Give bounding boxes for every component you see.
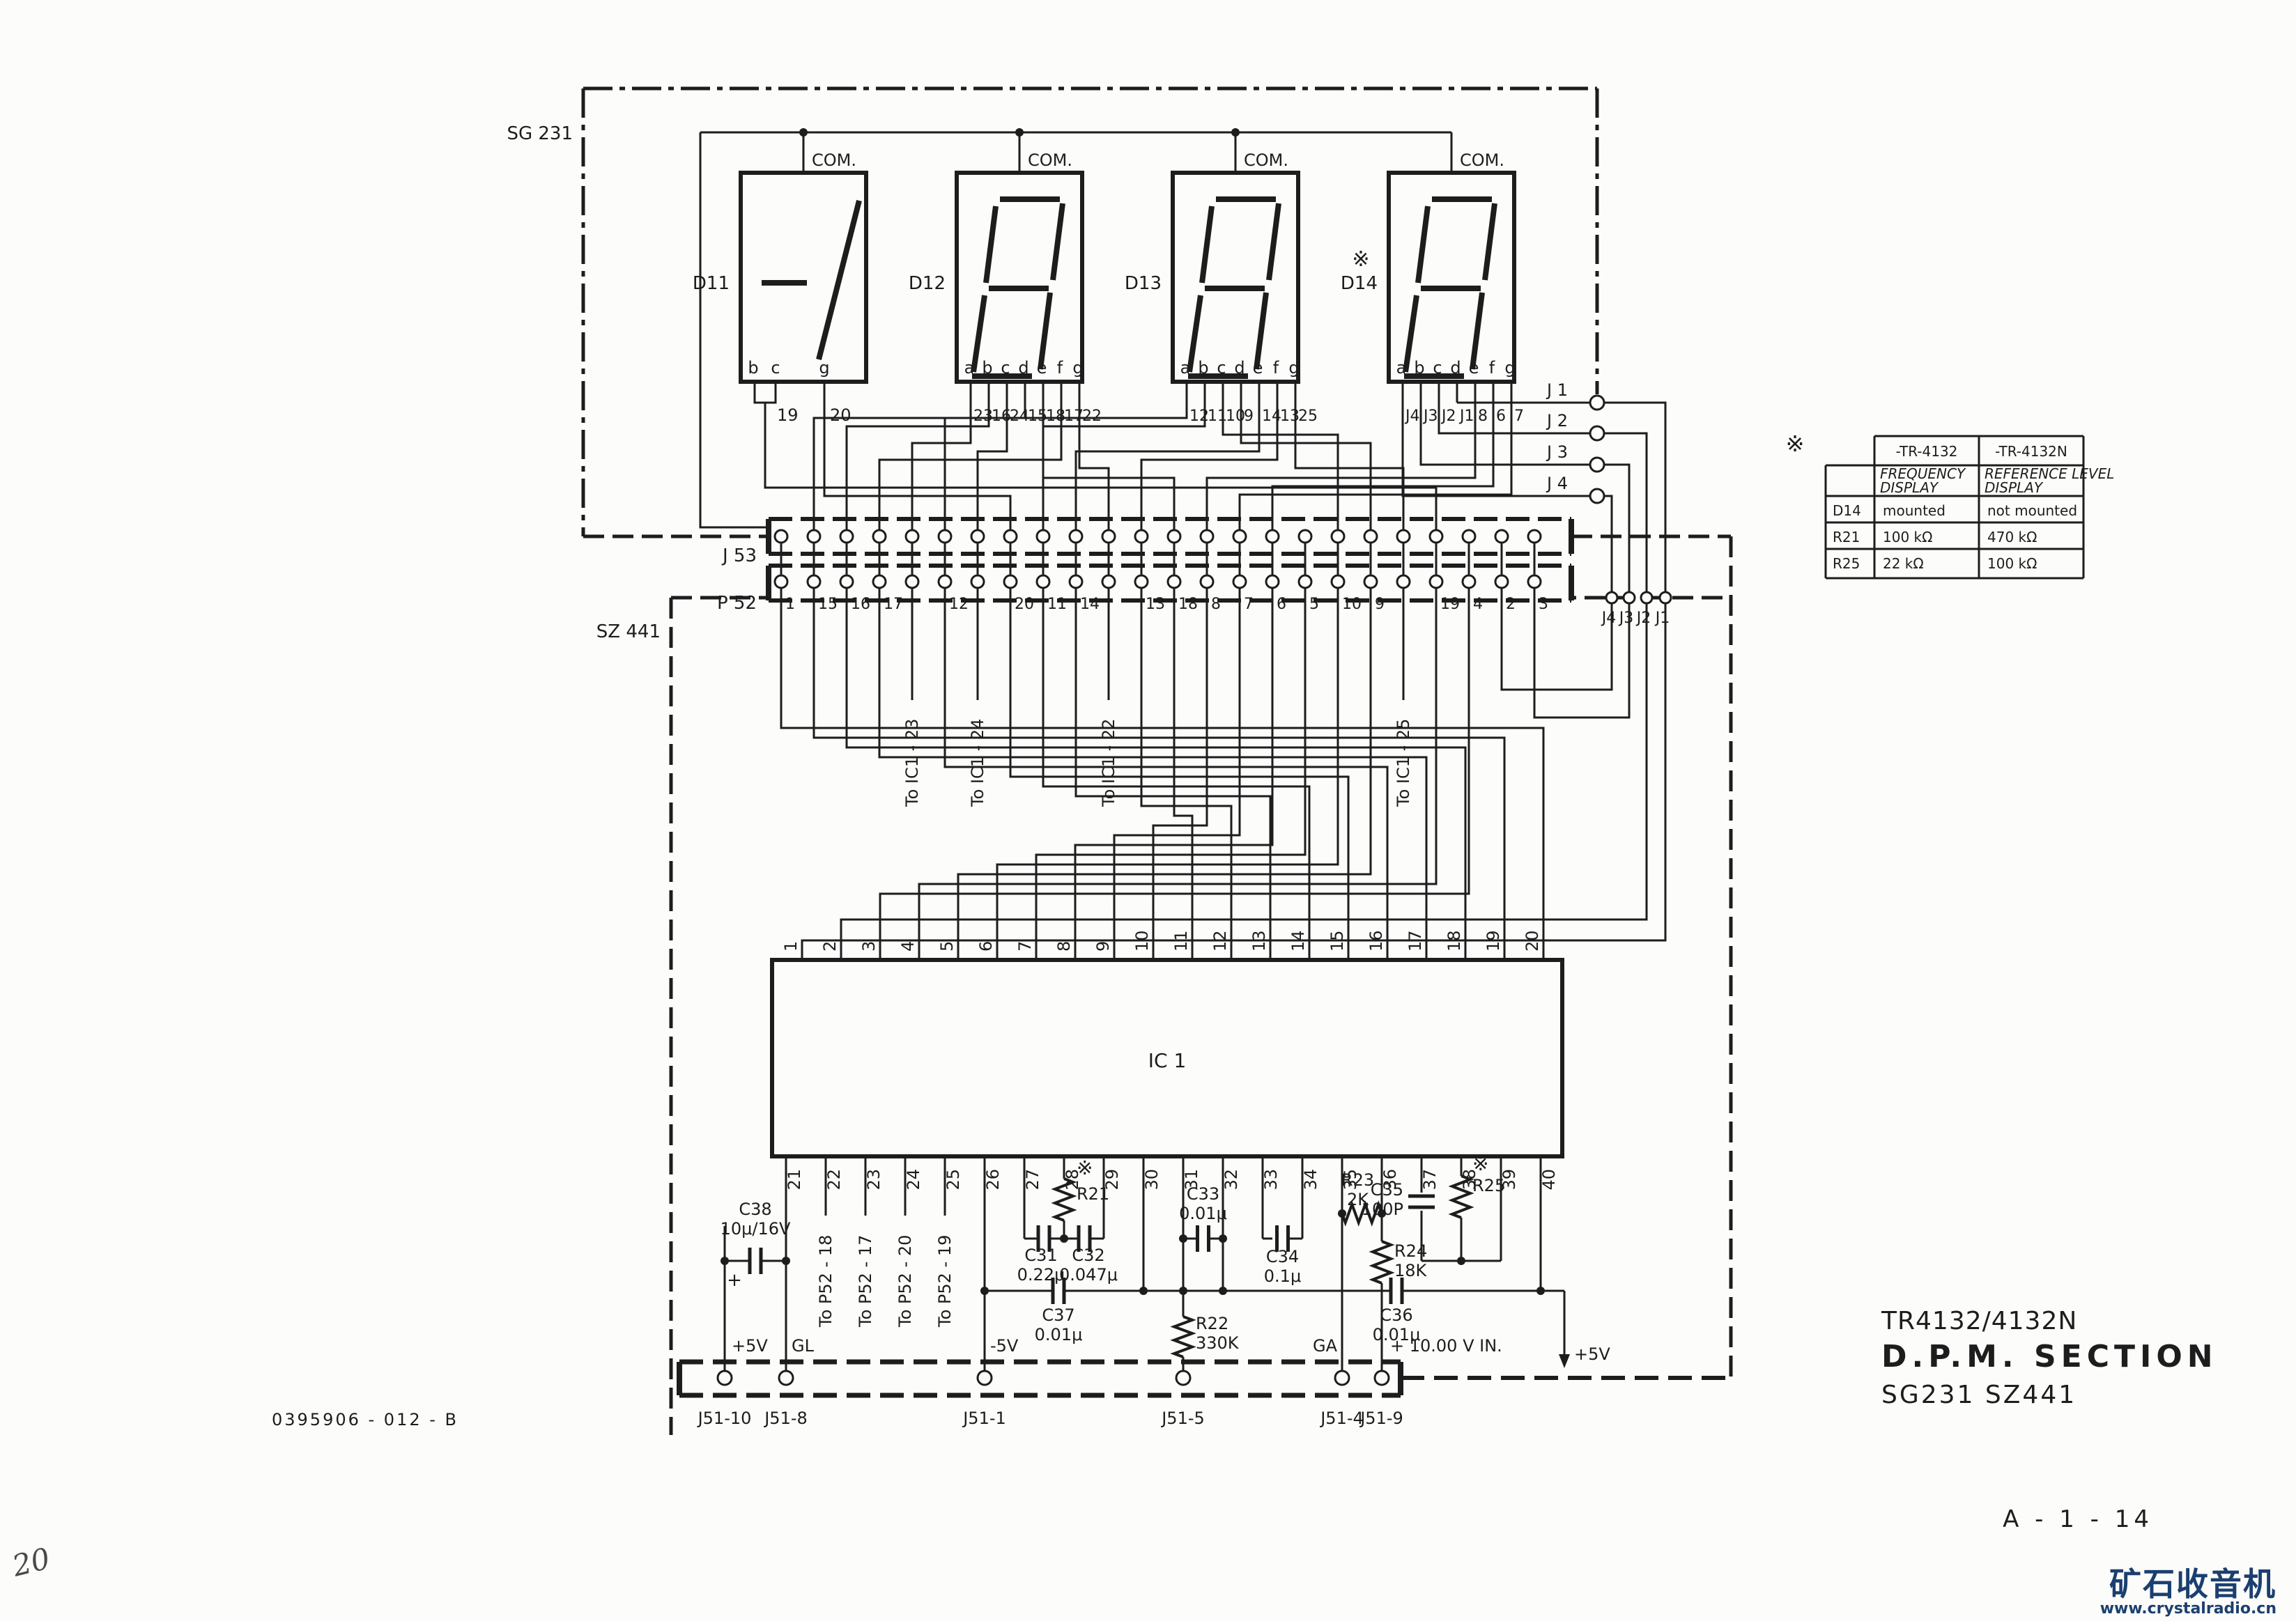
- jumper-label: J 4: [1546, 474, 1568, 493]
- segment-letter: f: [1057, 358, 1063, 378]
- connector-pin-circle: [1332, 575, 1344, 588]
- connector-pin-circle: [775, 530, 787, 543]
- connector-pin-circle: [1528, 530, 1541, 543]
- connector-pin-circle: [1495, 530, 1508, 543]
- p52-pin-number: 3: [1539, 596, 1548, 613]
- com-label: COM.: [812, 150, 856, 170]
- junction-dot: [1015, 128, 1024, 137]
- connector-pin-circle: [1397, 575, 1410, 588]
- segment-letter: b: [982, 358, 992, 378]
- com-label: COM.: [1028, 150, 1072, 170]
- connector-pin-circle: [1590, 489, 1604, 503]
- connector-pin-circle: [1463, 530, 1475, 543]
- c33-ref: C33: [1187, 1184, 1219, 1204]
- display-ref: D14: [1341, 273, 1378, 294]
- cascade-wire: [1534, 588, 1629, 718]
- display-pin-number: 8: [1478, 408, 1488, 425]
- segment-letter: g: [1504, 358, 1515, 378]
- p52-right-pin-label: J3: [1618, 610, 1634, 627]
- display-pin-number: J3: [1422, 408, 1438, 425]
- connector-pin-circle: [1430, 530, 1442, 543]
- watermark-name: 矿石收音机: [2100, 1567, 2276, 1601]
- segment-letter: e: [1469, 358, 1479, 378]
- connector-pin-circle: [1364, 575, 1377, 588]
- r23-ref: R23: [1341, 1170, 1374, 1190]
- power-label-p5-right: +5V: [1574, 1344, 1610, 1364]
- connector-pin-circle: [971, 575, 984, 588]
- p52-pin-number: 2: [1506, 596, 1516, 613]
- display-pin-number: 13: [1280, 408, 1300, 425]
- connector-pin-circle: [1606, 592, 1617, 603]
- c35-value: 100P: [1362, 1200, 1403, 1219]
- c34-ref: C34: [1266, 1247, 1299, 1266]
- segment-f: [986, 206, 996, 283]
- connector-pin-circle: [873, 575, 886, 588]
- connector-pin-circle: [1375, 1371, 1389, 1385]
- net-stub-label: To IC1 - 22: [1099, 719, 1118, 807]
- display-pin-number: J4: [1404, 408, 1420, 425]
- ic-top-pin-number: 16: [1366, 930, 1386, 952]
- ic-top-pin-number: 18: [1444, 930, 1464, 952]
- junction-dot: [1219, 1287, 1227, 1295]
- connector-pin-circle: [873, 530, 886, 543]
- segment-letter: d: [1234, 358, 1245, 378]
- c38-value: 10μ/16V: [721, 1219, 791, 1239]
- ic-bottom-pin-number: 37: [1420, 1169, 1440, 1190]
- display-pin-number: J1: [1458, 408, 1474, 425]
- junction-dot: [799, 128, 808, 137]
- ic-bottom-pin-number: 34: [1301, 1169, 1320, 1190]
- jumper-wire: [1604, 433, 1647, 592]
- ic-top-pin-number: 8: [1054, 941, 1074, 952]
- p52-pin-number: 15: [818, 596, 838, 613]
- p52-pin-number: 18: [1178, 596, 1198, 613]
- junction-dot: [1536, 1287, 1545, 1295]
- connector-pin-circle: [1070, 575, 1082, 588]
- p52-pin-number: 4: [1473, 596, 1483, 613]
- p52-pin-number: 13: [1146, 596, 1165, 613]
- ic-top-pin-number: 3: [859, 941, 879, 952]
- segment-letter: e: [1253, 358, 1263, 378]
- j51-pin-label: J51-1: [962, 1409, 1006, 1428]
- segment-letter: c: [1217, 358, 1226, 378]
- cascade-wire: [1153, 588, 1207, 960]
- ic-bottom-pin-number: 30: [1142, 1169, 1162, 1190]
- cascade-wire: [997, 588, 1338, 960]
- cascade-wire: [802, 603, 1665, 960]
- connector-pin-circle: [1299, 530, 1311, 543]
- connector-pin-circle: [1590, 396, 1604, 410]
- connector-pin-circle: [1168, 575, 1180, 588]
- connector-pin-circle: [1201, 530, 1213, 543]
- variant-marker: ※: [1352, 247, 1369, 272]
- display-ref: D12: [909, 273, 946, 294]
- com-label: COM.: [1244, 150, 1288, 170]
- connector-pin-circle: [939, 530, 951, 543]
- c35-ref: C35: [1371, 1180, 1403, 1200]
- connector-pin-circle: [1176, 1371, 1190, 1385]
- connector-pin-circle: [1590, 458, 1604, 472]
- connector-pin-circle: [1004, 575, 1017, 588]
- cascade-wire: [847, 588, 1465, 960]
- display-pin-number: 24: [1010, 408, 1029, 425]
- schematic-page: SG 231COM.D11bcg1920COM.D12a23b16c24d15e…: [0, 0, 2296, 1621]
- table-cell: 470 kΩ: [1987, 529, 2037, 545]
- segment-letter: a: [1396, 358, 1407, 378]
- cascade-wire: [781, 588, 1543, 960]
- display-pin-number: J2: [1440, 408, 1456, 425]
- display-pin-number: 25: [1298, 408, 1318, 425]
- segment-f: [1418, 206, 1428, 283]
- connector-pin-circle: [775, 575, 787, 588]
- ic-top-pin-number: 15: [1327, 930, 1347, 952]
- display-fan-wire: [765, 411, 1436, 530]
- segment-letter: g: [1288, 358, 1299, 378]
- segment-letter: e: [1037, 358, 1047, 378]
- ic-bottom-pin-number: 22: [824, 1169, 844, 1190]
- display-pin-stub: [755, 382, 776, 403]
- table-row-ref: D14: [1833, 502, 1861, 519]
- junction-dot: [721, 1257, 729, 1265]
- segment-letter: a: [964, 358, 975, 378]
- ic-top-pin-number: 5: [937, 941, 957, 952]
- j51-pin-label: J51-5: [1160, 1409, 1205, 1428]
- ic-top-pin-number: 13: [1249, 930, 1269, 952]
- connector-pin-circle: [808, 530, 820, 543]
- j51-pin-label: J51-8: [763, 1409, 808, 1428]
- connector-pin-circle: [840, 530, 853, 543]
- display-pin-number: 11: [1208, 408, 1227, 425]
- r22-value: 330K: [1196, 1333, 1240, 1353]
- p52-pin-number: 17: [884, 596, 903, 613]
- segment-letter: b: [748, 358, 758, 378]
- r21-marker: ※: [1077, 1156, 1093, 1179]
- segment-letter: d: [1450, 358, 1461, 378]
- j51-pin-label: J51-10: [697, 1409, 752, 1428]
- ic-top-pin-number: 9: [1093, 941, 1113, 952]
- cascade-wire: [1502, 588, 1612, 690]
- segment-letter: d: [1018, 358, 1028, 378]
- display-fan-wire: [912, 403, 971, 530]
- table-cell: 22 kΩ: [1883, 555, 1924, 572]
- r25-ref: R25: [1472, 1176, 1505, 1195]
- title-boards: SG231 SZ441: [1881, 1381, 2077, 1409]
- r24-resistor: [1373, 1241, 1391, 1283]
- title-model: TR4132/4132N: [1881, 1307, 2077, 1335]
- ic-bottom-pin-number: 33: [1261, 1169, 1281, 1190]
- connector-pin-circle: [1037, 575, 1049, 588]
- table-cell: not mounted: [1987, 502, 2077, 519]
- p52-pin-number: 8: [1211, 596, 1221, 613]
- display-ref: D11: [693, 273, 730, 294]
- power-label-gl: GL: [792, 1336, 815, 1356]
- segment-letter: c: [1433, 358, 1442, 378]
- display-fan-wire: [847, 403, 989, 530]
- ic-bottom-pin-number: 27: [1023, 1169, 1042, 1190]
- p52-pin-number: 10: [1342, 596, 1362, 613]
- segment-b: [1269, 203, 1279, 280]
- power-label-vin: + 10.00 V IN.: [1390, 1336, 1502, 1356]
- p52-right-pin-label: J2: [1635, 610, 1651, 627]
- cascade-wire: [1141, 588, 1231, 960]
- plus5-arrow: [1559, 1354, 1570, 1368]
- connector-pin-circle: [1168, 530, 1180, 543]
- connector-pin-circle: [1430, 575, 1442, 588]
- c32-value: 0.047μ: [1059, 1265, 1118, 1285]
- r21-ref: R21: [1077, 1184, 1109, 1204]
- j53-lead-solid: [700, 132, 766, 527]
- table-row-ref: R21: [1833, 529, 1860, 545]
- ic-top-pin-number: 6: [976, 941, 996, 952]
- ic-net-stub-label: To P52 - 20: [895, 1235, 915, 1328]
- c38-ref: C38: [739, 1200, 771, 1219]
- table-col-header: -TR-4132: [1896, 443, 1958, 460]
- p52-pin-number: 1: [785, 596, 795, 613]
- p52-right-pin-label: J4: [1601, 610, 1617, 627]
- connector-pin-circle: [1266, 530, 1279, 543]
- j51-pin-label: J51-9: [1359, 1409, 1403, 1428]
- connector-pin-circle: [1528, 575, 1541, 588]
- c38-polarity: +: [727, 1270, 742, 1291]
- connector-pin-circle: [1660, 592, 1671, 603]
- display-pin-number: 19: [777, 405, 799, 425]
- table-row-ref: R25: [1833, 555, 1860, 572]
- p52-right-pin-label: J1: [1654, 610, 1670, 627]
- jumper-wire: [1604, 496, 1612, 592]
- p52-pin-number: 20: [1015, 596, 1034, 613]
- ic-top-pin-number: 2: [820, 941, 840, 952]
- p52-pin-number: 12: [949, 596, 969, 613]
- display-pin-number: 18: [1046, 408, 1065, 425]
- c31-value: 0.22μ: [1017, 1265, 1065, 1285]
- connector-pin-circle: [840, 575, 853, 588]
- connector-pin-circle: [1463, 575, 1475, 588]
- connector-pin-circle: [1299, 575, 1311, 588]
- segment-b: [1485, 203, 1495, 280]
- net-stub-label: To IC1 - 24: [968, 719, 987, 807]
- ic-top-pin-number: 11: [1171, 930, 1191, 952]
- ic-bottom-pin-number: 24: [904, 1169, 923, 1190]
- connector-pin-circle: [978, 1371, 992, 1385]
- connector-pin-circle: [1037, 530, 1049, 543]
- connector-pin-circle: [1335, 1371, 1349, 1385]
- watermark-url: www.crystalradio.cn: [2100, 1601, 2276, 1617]
- display-pin-number: 20: [830, 405, 852, 425]
- cascade-wire: [1114, 588, 1240, 960]
- power-label-ga: GA: [1313, 1336, 1338, 1356]
- connector-pin-circle: [1364, 530, 1377, 543]
- display-pin-number: 12: [1189, 408, 1209, 425]
- connector-pin-circle: [906, 575, 918, 588]
- connector-pin-circle: [1201, 575, 1213, 588]
- connector-pin-circle: [808, 575, 820, 588]
- connector-pin-circle: [1590, 426, 1604, 440]
- connector-pin-circle: [779, 1371, 793, 1385]
- connector-pin-circle: [1135, 575, 1148, 588]
- connector-pin-circle: [1004, 530, 1017, 543]
- junction-dot: [1139, 1287, 1148, 1295]
- ic-bottom-pin-number: 40: [1539, 1169, 1559, 1190]
- net-stub-label: To IC1 - 25: [1394, 719, 1413, 807]
- cascade-wire: [1010, 588, 1348, 960]
- display-pin-number: 22: [1082, 408, 1102, 425]
- display-pin-number: 23: [973, 408, 993, 425]
- connector-pin-circle: [1641, 592, 1652, 603]
- table-col-header: -TR-4132N: [1995, 443, 2067, 460]
- connector-pin-circle: [1135, 530, 1148, 543]
- junction-dot: [1060, 1234, 1068, 1243]
- p52-pin-number: 6: [1277, 596, 1286, 613]
- ic-top-pin-number: 10: [1132, 930, 1152, 952]
- p52-pin-number: 16: [851, 596, 870, 613]
- seven-seg-display: [741, 173, 866, 382]
- display-pin-number: 9: [1244, 408, 1254, 425]
- display-pin-number: 14: [1262, 408, 1281, 425]
- c37-ref: C37: [1042, 1305, 1074, 1325]
- segment-letter: f: [1273, 358, 1279, 378]
- page-number: A - 1 - 14: [2003, 1505, 2153, 1533]
- segment-b: [1053, 203, 1063, 280]
- p52-pin-number: 11: [1047, 596, 1067, 613]
- watermark: 矿石收音机 www.crystalradio.cn: [2100, 1567, 2276, 1617]
- p52-pin-number: 7: [1244, 596, 1254, 613]
- variant-table-marker: ※: [1786, 431, 1805, 457]
- p52-pin-number: 9: [1375, 596, 1385, 613]
- segment-letter: a: [1180, 358, 1191, 378]
- segment-f: [1202, 206, 1212, 283]
- ic-top-pin-number: 17: [1405, 930, 1425, 952]
- j51-pin-label: J51-4: [1319, 1409, 1364, 1428]
- connector-pin-circle: [718, 1371, 732, 1385]
- connector-pin-circle: [1397, 530, 1410, 543]
- jumper-label: J 3: [1546, 442, 1568, 462]
- connector-pin-circle: [939, 575, 951, 588]
- ic-top-pin-number: 12: [1210, 930, 1230, 952]
- ic-top-pin-number: 14: [1288, 930, 1308, 952]
- display-pin-number: 10: [1226, 408, 1245, 425]
- title-section: D.P.M. SECTION: [1881, 1339, 2218, 1374]
- junction-dot: [1457, 1257, 1465, 1265]
- table-sub-header: DISPLAY: [1985, 479, 2044, 496]
- connector-pin-circle: [1233, 575, 1246, 588]
- display-pin-number: 6: [1496, 408, 1506, 425]
- c36-ref: C36: [1380, 1305, 1412, 1325]
- com-label: COM.: [1460, 150, 1504, 170]
- doc-number: 0395906 - 012 - B: [272, 1410, 459, 1429]
- segment-letter: g: [819, 358, 829, 378]
- ic-top-pin-number: 4: [898, 941, 918, 952]
- ic-bottom-pin-number: 21: [785, 1169, 804, 1190]
- board-label-sz441: SZ 441: [596, 621, 661, 642]
- c33-value: 0.01μ: [1179, 1204, 1227, 1223]
- junction-dot: [1231, 128, 1240, 137]
- ic-bottom-pin-number: 32: [1222, 1169, 1241, 1190]
- junction-dot: [1338, 1209, 1346, 1218]
- ic-bottom-pin-number: 23: [864, 1169, 884, 1190]
- cascade-wire: [841, 603, 1647, 960]
- display-pin-number: 16: [992, 408, 1011, 425]
- connector-pin-circle: [1332, 530, 1344, 543]
- connector-pin-circle: [971, 530, 984, 543]
- segment-letter: b: [1198, 358, 1208, 378]
- table-cell: 100 kΩ: [1987, 555, 2037, 572]
- connector-pin-circle: [1233, 530, 1246, 543]
- r24-value: 18K: [1394, 1261, 1428, 1280]
- display-ref: D13: [1125, 273, 1162, 294]
- segment-letter: g: [1072, 358, 1083, 378]
- junction-dot: [980, 1287, 989, 1295]
- ic-bottom-pin-number: 25: [943, 1169, 963, 1190]
- display-pin-number: 17: [1064, 408, 1084, 425]
- table-cell: 100 kΩ: [1883, 529, 1932, 545]
- segment-bc: [819, 201, 859, 359]
- connector-pin-circle: [1495, 575, 1508, 588]
- connector-pin-circle: [1624, 592, 1635, 603]
- c37-value: 0.01μ: [1035, 1325, 1083, 1344]
- connector-pin-circle: [1102, 575, 1115, 588]
- r22-resistor: [1174, 1317, 1192, 1357]
- net-stub-label: To IC1 - 23: [902, 719, 922, 807]
- segment-letter: c: [1001, 358, 1010, 378]
- jumper-wire: [1604, 465, 1629, 592]
- segment-letter: f: [1489, 358, 1495, 378]
- c34-value: 0.1μ: [1264, 1266, 1301, 1286]
- connector-label-j53: J 53: [721, 545, 757, 566]
- cascade-wire: [1174, 588, 1192, 960]
- table-cell: mounted: [1883, 502, 1946, 519]
- ic-net-stub-label: To P52 - 19: [935, 1235, 955, 1328]
- ic-bottom-pin-number: 26: [983, 1169, 1003, 1190]
- power-label-p5-left: +5V: [732, 1336, 768, 1356]
- ic1-ref: IC 1: [1148, 1049, 1187, 1072]
- power-label-m5: -5V: [990, 1336, 1019, 1356]
- ic-net-stub-label: To P52 - 17: [856, 1235, 875, 1328]
- display-pin-number: 7: [1514, 408, 1524, 425]
- c32-ref: C32: [1072, 1246, 1104, 1265]
- jumper-wire: [1604, 403, 1665, 592]
- connector-pin-circle: [1102, 530, 1115, 543]
- ic-top-pin-number: 1: [781, 941, 801, 952]
- p52-pin-number: 5: [1309, 596, 1319, 613]
- jumper-label: J 1: [1546, 380, 1568, 400]
- display-pin-number: 15: [1028, 408, 1047, 425]
- ic-net-stub-label: To P52 - 18: [816, 1235, 835, 1328]
- r22-ref: R22: [1196, 1314, 1228, 1333]
- connector-pin-circle: [906, 530, 918, 543]
- c31-ref: C31: [1024, 1246, 1057, 1265]
- board-label-sg231: SG 231: [507, 123, 573, 144]
- ic-top-pin-number: 19: [1484, 930, 1503, 952]
- connector-pin-circle: [1266, 575, 1279, 588]
- r25-marker: ※: [1472, 1152, 1488, 1175]
- segment-letter: c: [771, 358, 780, 378]
- p52-pin-number: 14: [1080, 596, 1100, 613]
- p52-pin-number: 19: [1440, 596, 1460, 613]
- connector-pin-circle: [1070, 530, 1082, 543]
- segment-letter: b: [1414, 358, 1424, 378]
- schematic-canvas: SG 231COM.D11bcg1920COM.D12a23b16c24d15e…: [0, 0, 2296, 1621]
- ic-top-pin-number: 7: [1015, 941, 1035, 952]
- table-sub-header: DISPLAY: [1880, 479, 1939, 496]
- jumper-label: J 2: [1546, 411, 1568, 431]
- ic-top-pin-number: 20: [1523, 930, 1542, 952]
